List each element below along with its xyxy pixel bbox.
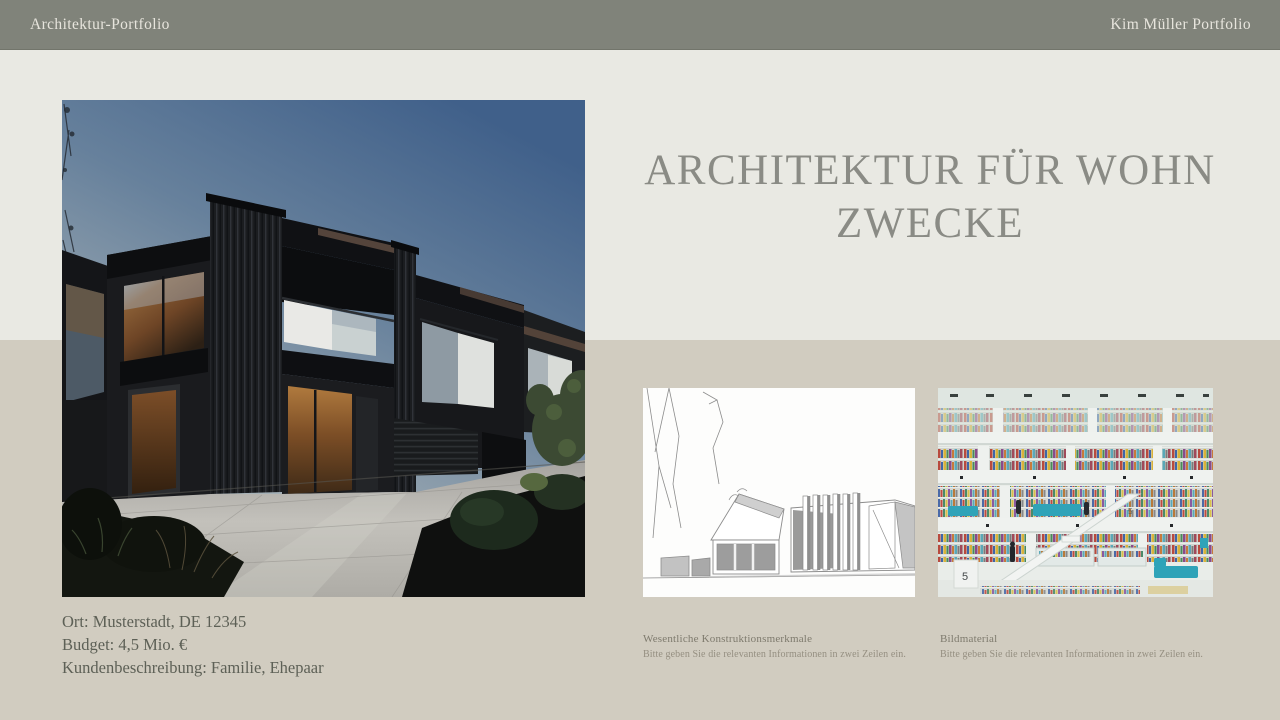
sketch-subcaption: Bitte geben Sie die relevanten Informati… — [643, 649, 943, 660]
project-info: Ort: Musterstadt, DE 12345 Budget: 4,5 M… — [62, 610, 324, 679]
author-label[interactable]: Kim Müller Portfolio — [1110, 16, 1251, 34]
architecture-sketch-illustration — [643, 388, 915, 597]
page-title: ARCHITEKTUR FÜR WOHN ZWECKE — [606, 144, 1254, 250]
library-subcaption: Bitte geben Sie die relevanten Informati… — [940, 649, 1240, 660]
library-caption-block: Bildmaterial Bitte geben Sie die relevan… — [940, 633, 1240, 660]
hero-photo — [62, 100, 585, 597]
library-number-cube-label: 5 — [962, 571, 968, 583]
sketch-caption: Wesentliche Konstruktionsmerkmale — [643, 633, 943, 645]
header-bar: Architektur-Portfolio Kim Müller Portfol… — [0, 0, 1280, 50]
project-info-kunde: Kundenbeschreibung: Familie, Ehepaar — [62, 656, 324, 679]
library-interior-illustration: 5 — [938, 388, 1213, 597]
sketch-caption-block: Wesentliche Konstruktionsmerkmale Bitte … — [643, 633, 943, 660]
portfolio-slide: Architektur-Portfolio Kim Müller Portfol… — [0, 0, 1280, 720]
page-title-line2: ZWECKE — [606, 197, 1254, 250]
page-title-line1: ARCHITEKTUR FÜR WOHN — [606, 144, 1254, 197]
project-info-ort: Ort: Musterstadt, DE 12345 — [62, 610, 324, 633]
site-title[interactable]: Architektur-Portfolio — [30, 16, 170, 34]
project-info-budget: Budget: 4,5 Mio. € — [62, 633, 324, 656]
library-level-sign: 5 — [1128, 507, 1133, 516]
hero-photo-illustration — [62, 100, 585, 597]
sketch-figure — [643, 388, 915, 597]
library-caption: Bildmaterial — [940, 633, 1240, 645]
library-figure: 5 — [938, 388, 1213, 597]
